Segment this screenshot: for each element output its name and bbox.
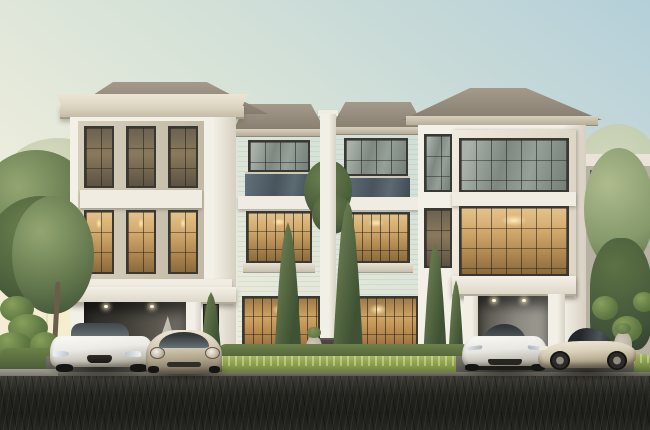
right-carport-beam <box>452 276 576 296</box>
left-carport-downlight-1 <box>104 305 108 308</box>
sedan-headlight-right <box>124 351 141 357</box>
paved-road <box>0 376 650 430</box>
coupe-headlight-left <box>150 347 165 360</box>
right-floor-band <box>452 192 576 206</box>
topiary-ball-1 <box>592 296 618 320</box>
coupe-intake <box>167 362 200 367</box>
left-bay-lower-window-2 <box>126 210 156 274</box>
sports-tire-left <box>465 364 479 370</box>
coupe-tire-right <box>209 366 220 373</box>
sedan-grille <box>87 355 112 363</box>
right-corner-window-upper <box>424 134 452 192</box>
coupe-tire-left <box>148 366 159 373</box>
right-carport-downlight-1 <box>492 299 496 302</box>
white-sedan <box>50 322 154 372</box>
sedan-headlight-left <box>53 351 70 357</box>
left-bay-upper-window-3 <box>168 126 198 188</box>
sedan-tire-left <box>56 364 73 372</box>
right-third-floor-window <box>459 138 569 192</box>
right-carport-downlight-2 <box>522 299 526 302</box>
mid-right-glass-balcony <box>342 176 410 199</box>
white-sports-car <box>462 324 548 372</box>
left-bay-upper-window-2 <box>126 126 156 188</box>
central-pier <box>320 114 336 346</box>
scene-architectural-rendering <box>0 0 650 430</box>
left-bay-upper-window-1 <box>84 126 114 188</box>
mid-left-french-windows <box>246 211 312 263</box>
left-carport-downlight-2 <box>150 305 154 308</box>
topiary-ball-3 <box>633 292 650 312</box>
champagne-gt <box>538 328 636 372</box>
left-bay-spandrel <box>80 190 202 208</box>
mid-left-third-floor-window <box>248 140 310 172</box>
champagne-coupe <box>146 330 222 374</box>
sports-intake <box>488 359 522 365</box>
sedan-tire-right <box>130 364 147 372</box>
right-second-floor-window <box>459 206 569 276</box>
left-tower-base-molding <box>74 279 232 287</box>
sports-splitter <box>471 366 540 369</box>
mid-left-glass-balcony <box>245 172 313 198</box>
mid-right-third-floor-window <box>344 138 408 176</box>
mid-left-balustrade <box>243 263 315 273</box>
left-bay-lower-window-3 <box>168 210 198 274</box>
